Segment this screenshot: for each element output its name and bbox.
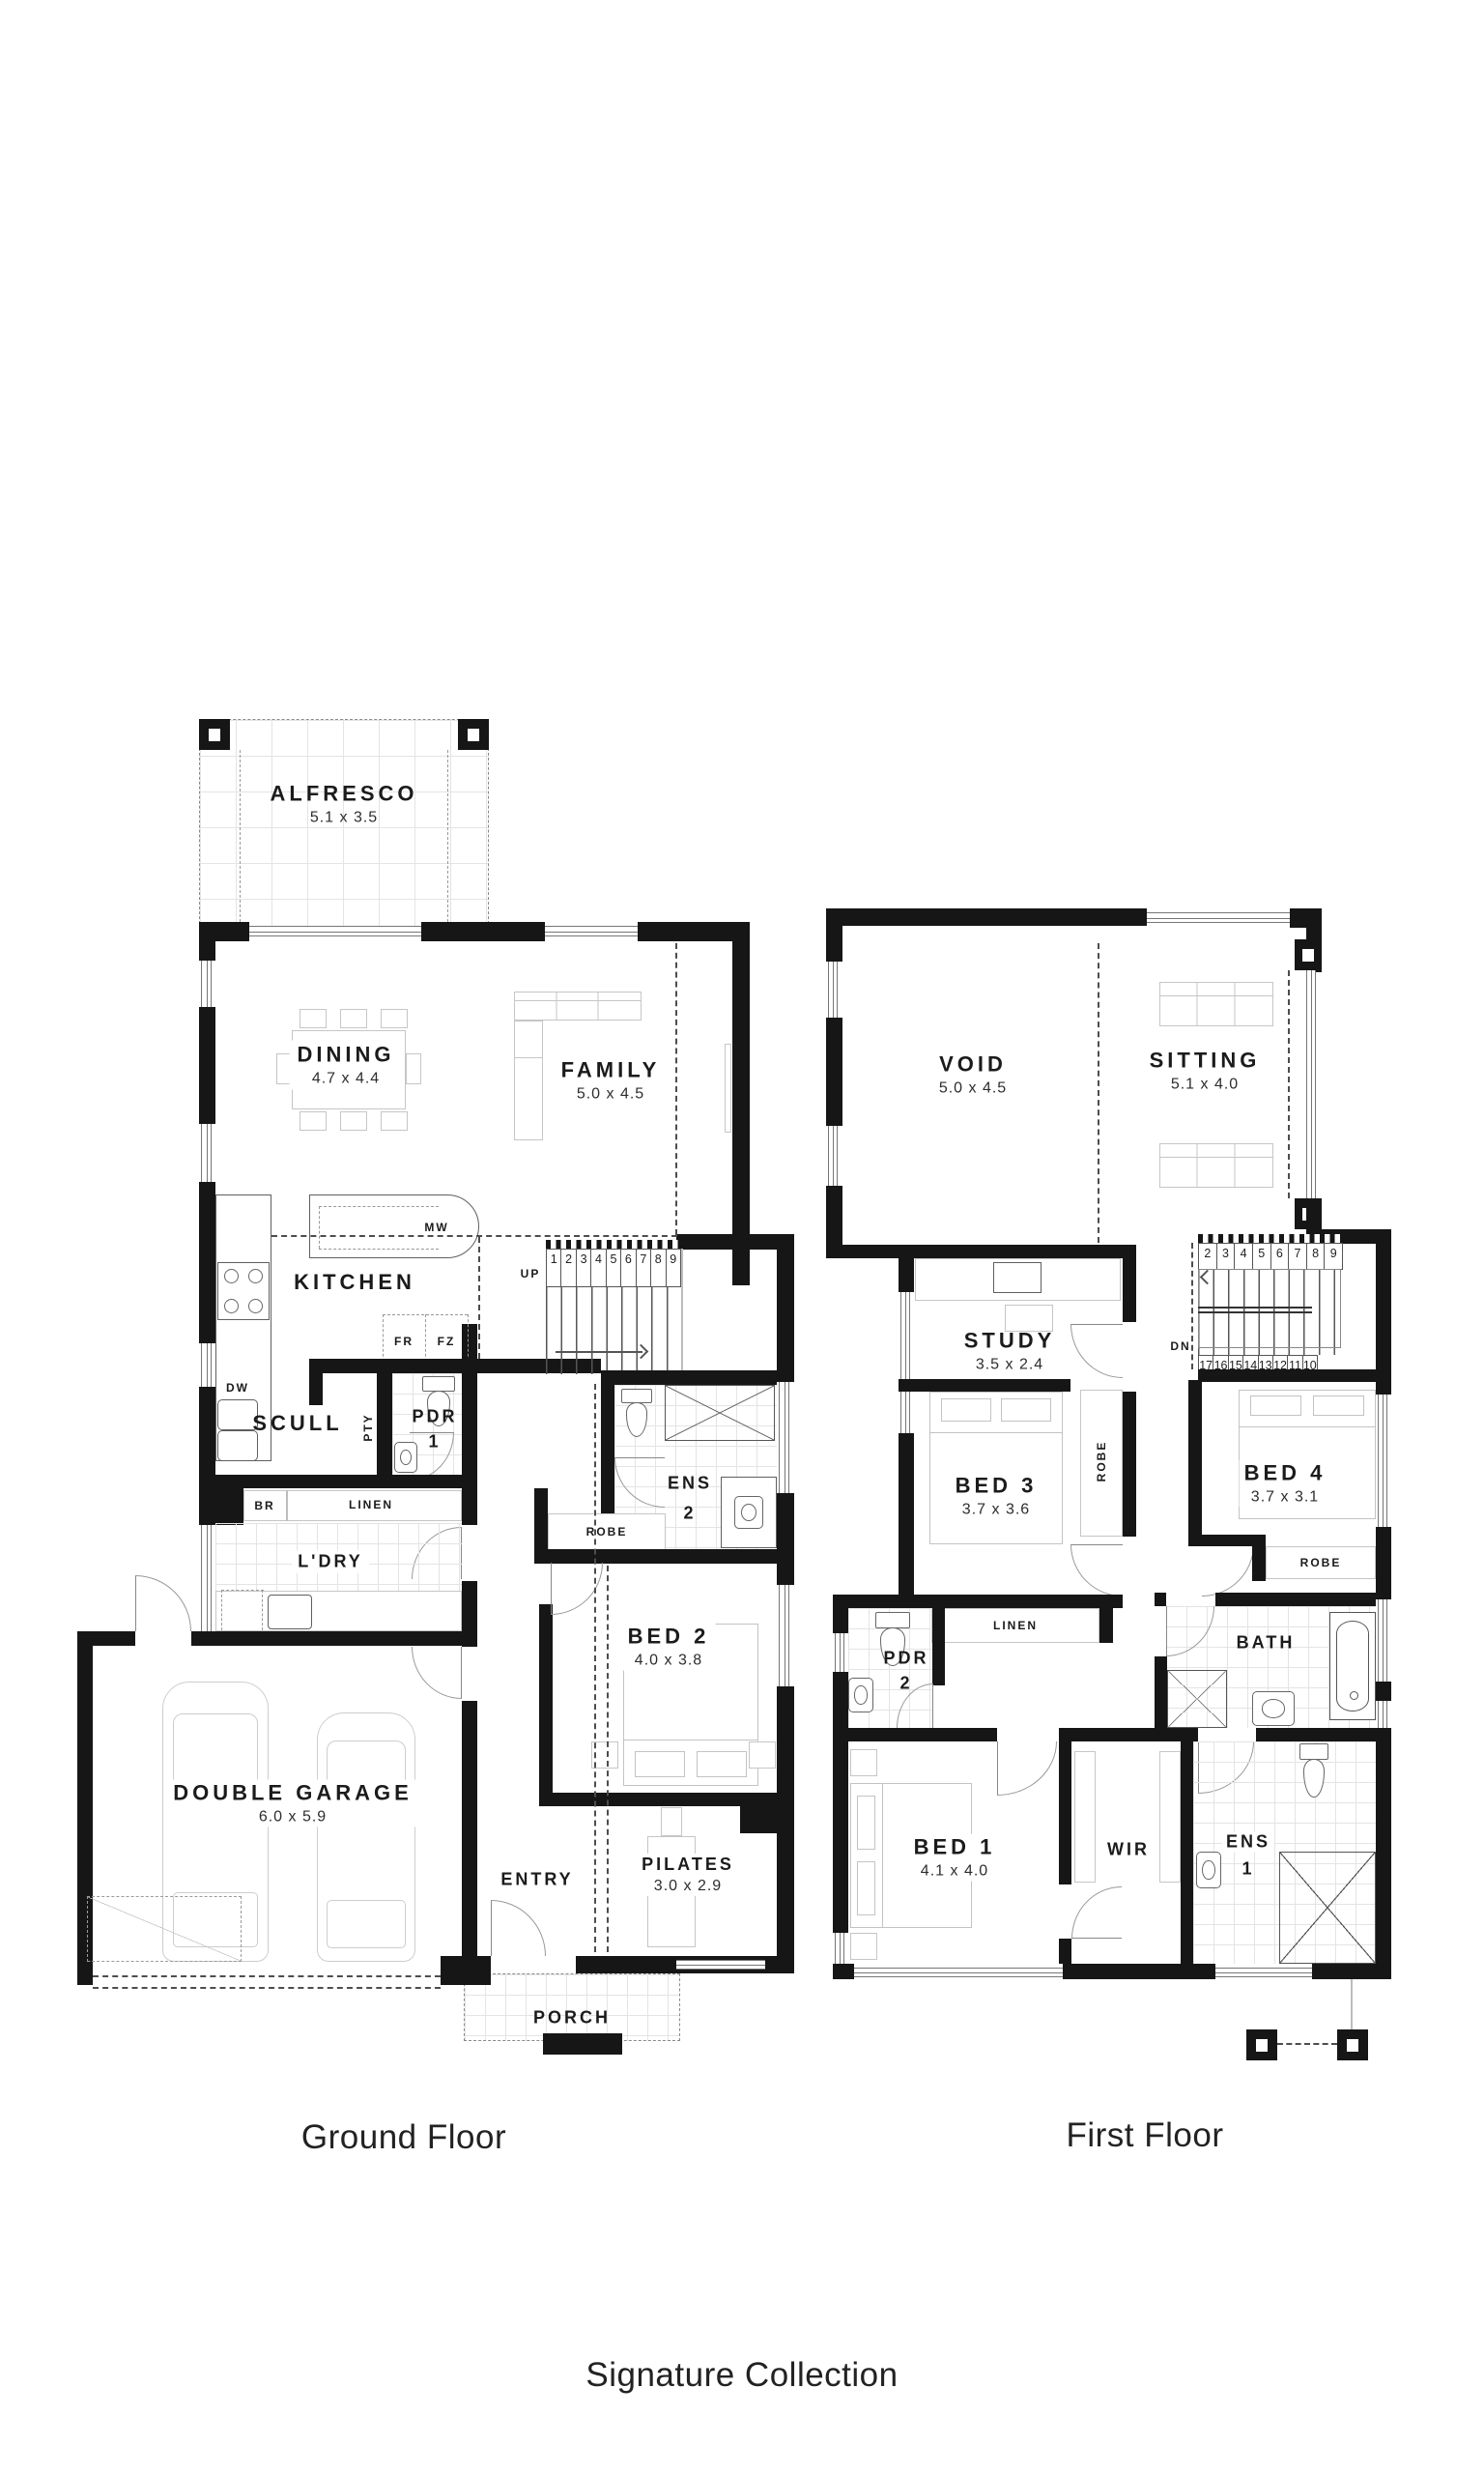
room-label-study: STUDY 3.5 x 2.4 <box>964 1329 1056 1374</box>
stair-numbers-top: 2 3 4 5 6 7 8 9 <box>1198 1243 1343 1270</box>
wall <box>777 1493 794 1585</box>
room-name: ENTRY <box>500 1870 573 1890</box>
window <box>249 926 421 936</box>
room-name: DINING <box>298 1043 395 1068</box>
room-dims: 5.1 x 4.0 <box>1150 1077 1261 1094</box>
room-name: PORCH <box>533 2008 611 2028</box>
side-table <box>749 1741 776 1769</box>
stair-step: 9 <box>667 1250 680 1286</box>
window <box>900 1292 910 1433</box>
bed <box>929 1392 1063 1544</box>
door-arc-garage <box>412 1647 462 1699</box>
basin <box>1196 1852 1221 1888</box>
dining-chair <box>340 1009 367 1028</box>
wall <box>77 1962 93 1985</box>
room-num-pdr1: 1 <box>428 1432 441 1453</box>
wall <box>833 1608 848 1633</box>
dining-chair <box>406 1053 421 1084</box>
door-arc-bed3 <box>1070 1544 1123 1597</box>
alfresco-line <box>240 750 241 932</box>
linen-label: LINEN <box>993 1619 1038 1632</box>
dining-chair <box>340 1111 367 1131</box>
dining-chair <box>381 1009 408 1028</box>
room-dims: 3.5 x 2.4 <box>964 1357 1056 1374</box>
window <box>1378 1395 1387 1527</box>
garage-door-line <box>93 1987 441 1989</box>
room-name: VOID <box>939 1052 1007 1078</box>
wall <box>1123 1392 1136 1537</box>
computer <box>993 1262 1042 1293</box>
stair-step: 3 <box>577 1250 591 1286</box>
shower <box>1279 1852 1376 1964</box>
room-dims: 4.7 x 4.4 <box>298 1071 395 1088</box>
wall <box>1198 1369 1391 1382</box>
window <box>854 1968 1063 1977</box>
room-num-ens1: 1 <box>1241 1859 1254 1880</box>
room-label-porch: PORCH <box>533 2008 611 2028</box>
linen-label: LINEN <box>349 1498 393 1511</box>
wall <box>601 1373 614 1515</box>
room-num: 2 <box>683 1504 696 1524</box>
stair-up-label: UP <box>521 1267 541 1280</box>
room-dims: 5.0 x 4.5 <box>561 1086 661 1104</box>
wall <box>833 1728 997 1741</box>
room-name: PDR <box>412 1407 457 1427</box>
fridge-box <box>383 1314 468 1315</box>
ldry-sink <box>268 1595 312 1629</box>
window <box>201 961 212 1007</box>
wall <box>1059 1741 1071 1884</box>
stair-step: 5 <box>607 1250 621 1286</box>
void-line <box>1098 943 1099 1243</box>
basin <box>1252 1691 1295 1726</box>
dining-chair <box>300 1009 327 1028</box>
alfresco-post <box>199 719 230 750</box>
window <box>676 1960 765 1970</box>
room-num: 2 <box>899 1674 912 1694</box>
stair-balustrade <box>546 1240 681 1249</box>
room-label-sitting: SITTING 5.1 x 4.0 <box>1150 1049 1261 1094</box>
stair-step: 2 <box>1199 1244 1217 1269</box>
shelf-divider <box>286 1490 288 1521</box>
room-label-bed2: BED 2 4.0 x 3.8 <box>622 1624 716 1671</box>
island-overhang <box>319 1206 439 1207</box>
wir-shelf <box>1159 1751 1181 1883</box>
basin <box>734 1496 763 1529</box>
stair-treads <box>546 1287 681 1374</box>
room-dims: 3.7 x 3.6 <box>956 1502 1038 1519</box>
wall <box>1256 1728 1391 1741</box>
bay-pier <box>1295 939 1322 970</box>
wall <box>826 908 1147 926</box>
broom-label: BR <box>254 1499 274 1512</box>
wall <box>462 1581 477 1647</box>
bulkhead-line <box>478 1237 480 1359</box>
alfresco-line <box>447 750 448 932</box>
room-label-pdr2: PDR <box>883 1649 928 1669</box>
stair-step: 5 <box>1253 1244 1271 1269</box>
cooktop <box>217 1262 270 1320</box>
wall <box>462 1701 477 1962</box>
room-name: ENS <box>1226 1832 1270 1853</box>
dining-chair <box>300 1111 327 1131</box>
room-name: BED 3 <box>956 1474 1038 1499</box>
wall <box>732 922 750 1242</box>
window <box>835 1933 844 1968</box>
wall <box>199 922 215 961</box>
wall <box>1376 1527 1391 1599</box>
wall <box>1099 1608 1113 1643</box>
wall <box>539 1604 553 1802</box>
room-label-scull: SCULL <box>252 1411 342 1436</box>
bulkhead-line <box>271 1235 677 1237</box>
room-num: 1 <box>428 1432 441 1453</box>
room-dims: 5.1 x 3.5 <box>271 810 418 827</box>
stair-step: 7 <box>637 1250 651 1286</box>
porch-step <box>543 2033 622 2055</box>
window <box>835 1633 844 1672</box>
room-label-void: VOID 5.0 x 4.5 <box>939 1052 1007 1098</box>
wall <box>199 1182 215 1343</box>
stair-rail <box>1198 1307 1312 1313</box>
room-name: BATH <box>1237 1633 1296 1654</box>
door-arc-garage-side <box>135 1575 191 1631</box>
side-table <box>850 1933 877 1960</box>
stair-step: 1 <box>547 1250 561 1286</box>
window <box>1147 912 1290 923</box>
stair-step: 7 <box>1289 1244 1307 1269</box>
window <box>779 1585 789 1686</box>
stair-step: 4 <box>591 1250 606 1286</box>
basin <box>848 1678 873 1712</box>
window <box>779 1382 789 1493</box>
window <box>545 926 638 936</box>
wall <box>1123 1245 1136 1322</box>
sitting-sofa <box>1159 1143 1273 1188</box>
porch-line <box>1351 1979 1353 2031</box>
wall <box>191 1631 477 1646</box>
porch-post <box>1337 2029 1368 2060</box>
door-arc-bed4 <box>1202 1544 1254 1597</box>
room-name: SITTING <box>1150 1049 1261 1074</box>
wall <box>1155 1593 1166 1606</box>
wall <box>199 1484 243 1525</box>
stair-step: 2 <box>561 1250 576 1286</box>
stair-step: 3 <box>1217 1244 1236 1269</box>
side-table <box>850 1749 877 1776</box>
wall <box>215 1475 462 1488</box>
wall <box>1059 1939 1071 1964</box>
room-name: PDR <box>883 1649 928 1669</box>
room-label-kitchen: KITCHEN <box>294 1270 415 1295</box>
window <box>1378 1599 1387 1682</box>
room-label-ens1: ENS <box>1222 1832 1274 1853</box>
family-sofa <box>514 1021 543 1140</box>
room-name: KITCHEN <box>294 1270 415 1295</box>
car <box>317 1712 415 1962</box>
window <box>201 1343 212 1387</box>
room-dims: 3.0 x 2.9 <box>642 1878 734 1895</box>
room-dims: 5.0 x 4.5 <box>939 1080 1007 1098</box>
room-label-entry: ENTRY <box>500 1870 573 1890</box>
wall <box>899 1258 914 1292</box>
room-label-alfresco: ALFRESCO 5.1 x 3.5 <box>271 782 418 827</box>
door-arc-study <box>1070 1324 1123 1378</box>
wall <box>601 1370 777 1385</box>
shower <box>1167 1670 1227 1728</box>
room-label-bed3: BED 3 3.7 x 3.6 <box>951 1473 1042 1520</box>
robe-label: ROBE <box>1095 1441 1108 1482</box>
stair-step: 4 <box>1235 1244 1253 1269</box>
room-name: BED 2 <box>628 1625 710 1650</box>
collection-caption: Signature Collection <box>585 2356 898 2395</box>
bay-line <box>1288 970 1290 1198</box>
wall <box>1376 1682 1391 1701</box>
window <box>1306 970 1316 1198</box>
wall <box>1155 1656 1167 1728</box>
room-num-pdr2: 2 <box>899 1674 912 1694</box>
wall <box>732 1234 750 1285</box>
wall <box>1312 1964 1391 1979</box>
room-name: BED 4 <box>1244 1461 1327 1486</box>
wall <box>777 1686 794 1800</box>
room-label-bath: BATH <box>1237 1633 1296 1654</box>
toilet <box>1297 1743 1331 1798</box>
room-label-dining: DINING 4.7 x 4.4 <box>290 1041 403 1090</box>
wm-space <box>221 1590 264 1591</box>
door-arc-wir <box>1071 1886 1122 1939</box>
room-label-pilates: PILATES 3.0 x 2.9 <box>637 1854 739 1896</box>
sitting-sofa <box>1159 982 1273 1026</box>
wall <box>1215 1593 1376 1606</box>
wall <box>826 908 842 962</box>
room-name: WIR <box>1107 1840 1150 1860</box>
wm-space <box>221 1590 222 1630</box>
porch-beam-line <box>1277 2043 1337 2045</box>
dishwasher-label: DW <box>226 1381 249 1395</box>
wm-space <box>262 1590 263 1630</box>
wall <box>309 1359 323 1405</box>
wall <box>833 1964 854 1979</box>
shower <box>665 1385 775 1441</box>
stair-step: 6 <box>1271 1244 1290 1269</box>
wall <box>914 1595 1123 1608</box>
pantry-label: PTY <box>361 1413 375 1441</box>
wall <box>899 1379 1070 1392</box>
door-arc-entry <box>491 1900 546 1956</box>
room-label-ens2: ENS <box>668 1474 712 1494</box>
room-name: PILATES <box>642 1855 734 1875</box>
porch-post <box>1246 2029 1277 2060</box>
stair-numbers: 1 2 3 4 5 6 7 8 9 <box>546 1249 681 1287</box>
freezer-label: FZ <box>438 1335 456 1348</box>
wall <box>899 1433 914 1608</box>
alfresco-post <box>458 719 489 750</box>
wall <box>377 1373 392 1482</box>
room-dims: 3.7 x 3.1 <box>1244 1489 1327 1507</box>
island-overhang <box>319 1206 320 1249</box>
room-label-garage: DOUBLE GARAGE 6.0 x 5.9 <box>167 1780 418 1827</box>
wall <box>826 1018 842 1126</box>
dining-chair <box>381 1111 408 1131</box>
room-label-pdr1: PDR <box>412 1407 457 1427</box>
room-dims: 6.0 x 5.9 <box>173 1809 413 1827</box>
first-floor-caption: First Floor <box>1067 2116 1224 2155</box>
bulkhead-line <box>675 943 677 1235</box>
room-dims: 4.1 x 4.0 <box>914 1863 996 1881</box>
stair-step: 9 <box>1325 1244 1342 1269</box>
wall <box>833 1595 914 1608</box>
wall <box>915 1245 1123 1258</box>
wall <box>1188 1380 1202 1537</box>
wall <box>546 1549 794 1564</box>
hall-line <box>607 1566 609 1952</box>
window <box>1215 1968 1312 1977</box>
room-label-bed1: BED 1 4.1 x 4.0 <box>909 1834 1001 1882</box>
ground-floor-caption: Ground Floor <box>301 2118 506 2157</box>
wall <box>826 1245 915 1258</box>
stair-step: 8 <box>651 1250 666 1286</box>
wall <box>1252 1544 1266 1581</box>
room-name: BED 1 <box>914 1835 996 1860</box>
room-num-ens2: 2 <box>683 1504 696 1524</box>
room-name: DOUBLE GARAGE <box>173 1781 413 1806</box>
room-num: 1 <box>1241 1859 1254 1880</box>
stair-arrow <box>556 1351 642 1353</box>
wall <box>833 1672 848 1933</box>
hall-line <box>594 1384 596 1952</box>
room-label-ldry: L'DRY <box>292 1551 369 1573</box>
garage-store-area <box>87 1896 242 1962</box>
stair-void-line <box>1191 1243 1193 1369</box>
robe-label: ROBE <box>586 1525 628 1539</box>
stair-balustrade <box>1198 1234 1343 1243</box>
window <box>828 1126 838 1186</box>
robe-label: ROBE <box>1300 1556 1342 1569</box>
wall <box>539 1793 794 1806</box>
wall <box>777 1833 794 1962</box>
fridge-label: FR <box>394 1335 414 1348</box>
wall <box>777 1250 794 1382</box>
microwave-label: MW <box>424 1221 448 1234</box>
pilates-equipment <box>661 1807 682 1836</box>
wall <box>1059 1728 1198 1741</box>
tv-unit <box>725 1044 731 1133</box>
room-name: SCULL <box>252 1411 342 1436</box>
wall <box>932 1608 945 1685</box>
room-name: ENS <box>668 1474 712 1494</box>
stair-step: 8 <box>1307 1244 1326 1269</box>
wall <box>462 1324 477 1525</box>
room-name: STUDY <box>964 1329 1056 1354</box>
ldry-bench <box>215 1591 462 1631</box>
room-name: FAMILY <box>561 1058 661 1083</box>
floorplan-page: { "captions": { "ground": "Ground Floor"… <box>0 0 1484 2474</box>
bathtub <box>1329 1612 1376 1720</box>
wall <box>1376 1740 1391 1979</box>
room-dims: 4.0 x 3.8 <box>628 1653 710 1670</box>
window <box>201 1525 212 1631</box>
wall <box>199 1007 215 1124</box>
family-sofa <box>514 992 642 1021</box>
island-overhang <box>319 1249 439 1250</box>
wall <box>421 922 545 941</box>
window <box>201 1124 212 1182</box>
wall <box>1181 1741 1193 1979</box>
wall <box>441 1962 491 1985</box>
garage-door-line <box>93 1975 441 1977</box>
stair-edge <box>681 1249 683 1374</box>
room-label-wir: WIR <box>1107 1840 1150 1860</box>
wir-shelf <box>1074 1751 1096 1883</box>
stair-step: 6 <box>621 1250 636 1286</box>
room-name: L'DRY <box>298 1552 363 1572</box>
room-label-bed4: BED 4 3.7 x 3.1 <box>1240 1460 1331 1508</box>
room-name: ALFRESCO <box>271 782 418 807</box>
door-arc-bed1 <box>997 1741 1057 1796</box>
window <box>828 962 838 1018</box>
toilet <box>618 1389 655 1437</box>
room-label-family: FAMILY 5.0 x 4.5 <box>561 1058 661 1104</box>
stair-dn-label: DN <box>1170 1339 1190 1353</box>
